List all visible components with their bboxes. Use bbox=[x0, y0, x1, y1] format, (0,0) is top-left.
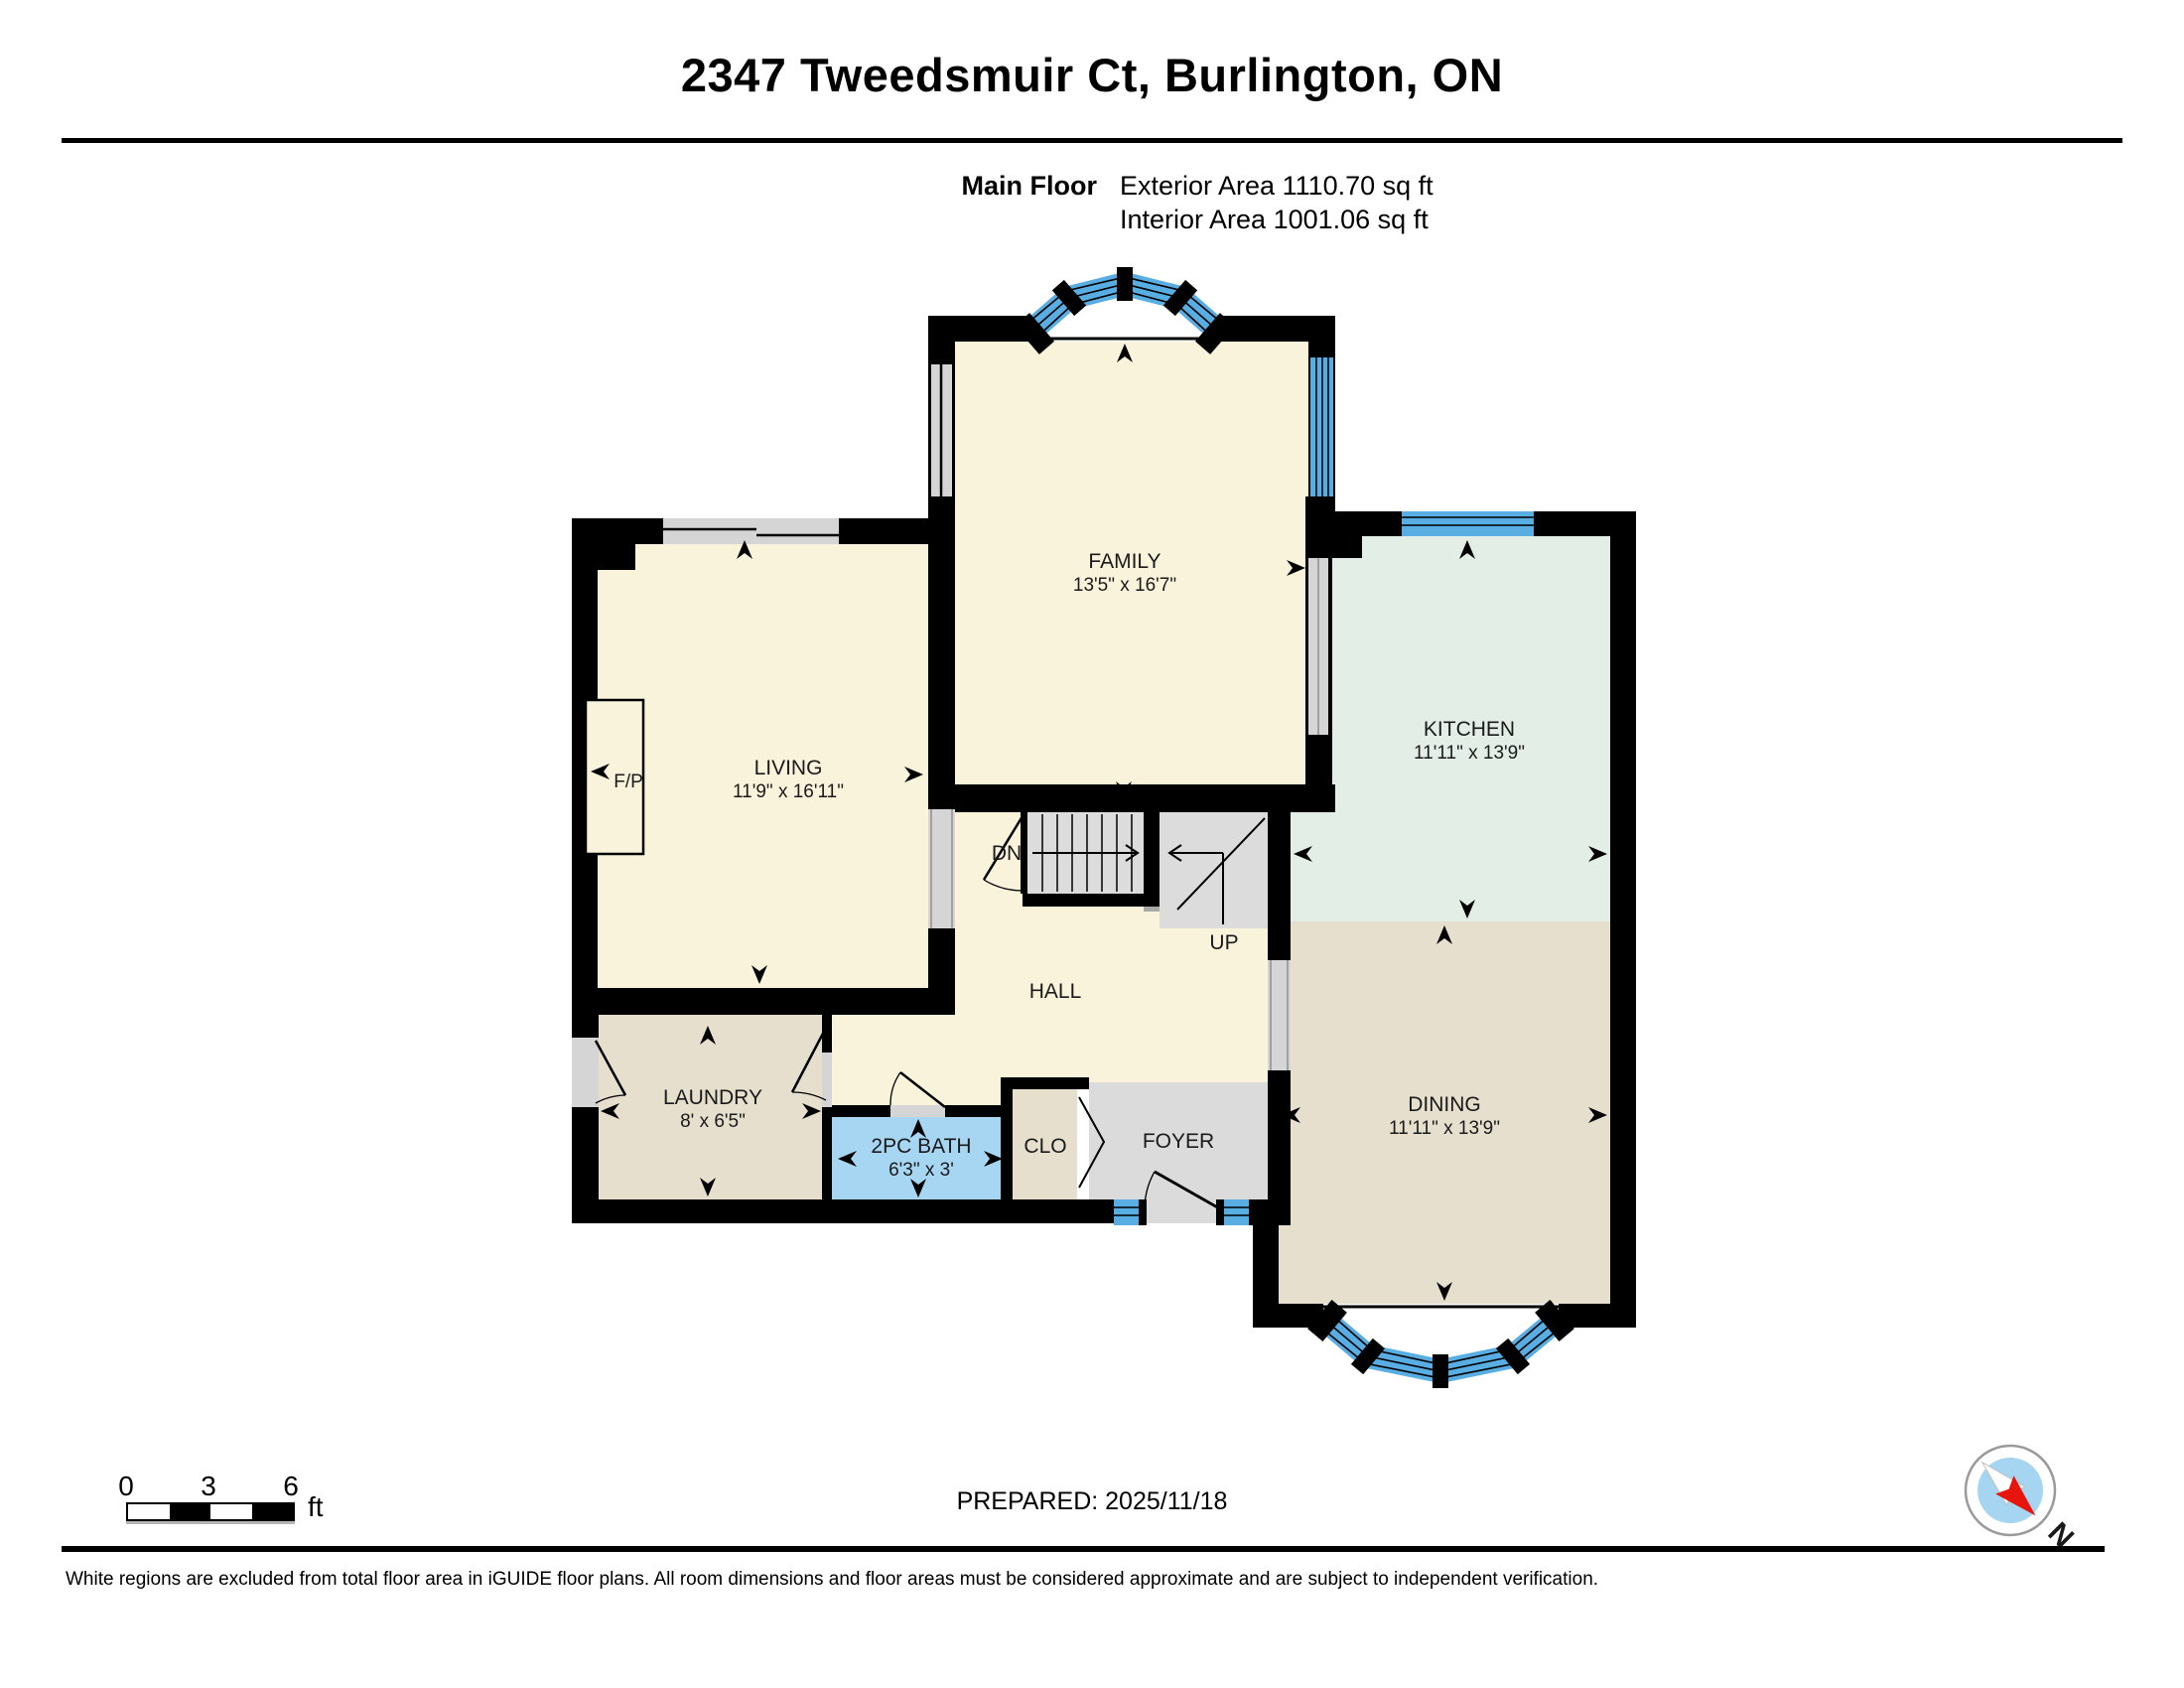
room-bath-label: 2PC BATH bbox=[871, 1135, 971, 1158]
floorplan-page: { "header": { "title": "2347 Tweedsmuir … bbox=[0, 0, 2184, 1688]
laundry-left-door-opening bbox=[572, 1038, 599, 1107]
front-sidelight-right bbox=[1224, 1199, 1249, 1225]
room-family-dims: 13'5" x 16'7" bbox=[1073, 575, 1176, 596]
floor-plan-svg: FAMILY 13'5" x 16'7" LIVING 11'9" x 16'1… bbox=[0, 0, 2184, 1688]
room-laundry-label: LAUNDRY bbox=[663, 1086, 762, 1109]
family-right-window bbox=[1310, 357, 1333, 496]
room-bath-dims: 6'3" x 3' bbox=[888, 1160, 954, 1181]
family-kitchen-opening bbox=[1308, 558, 1328, 735]
scale-bar-shadow bbox=[126, 1521, 295, 1524]
front-sidelight-left bbox=[1114, 1199, 1139, 1225]
stairs-up-label: UP bbox=[1209, 931, 1238, 954]
room-family-label: FAMILY bbox=[1088, 550, 1160, 573]
kitchen-window bbox=[1402, 511, 1534, 536]
hall-dining-opening bbox=[1268, 960, 1291, 1070]
room-dining-label: DINING bbox=[1408, 1093, 1481, 1116]
room-kitchen-label: KITCHEN bbox=[1424, 718, 1515, 741]
room-hall-label: HALL bbox=[1029, 980, 1082, 1003]
disclaimer-text: White regions are excluded from total fl… bbox=[66, 1569, 1598, 1591]
room-kitchen-dims: 11'11" x 13'9" bbox=[1414, 743, 1525, 764]
room-fills bbox=[598, 342, 1610, 1304]
stairs-dn-label: DN bbox=[992, 842, 1022, 865]
fireplace-label: F/P bbox=[614, 772, 643, 792]
room-foyer-label: FOYER bbox=[1143, 1130, 1214, 1153]
living-hall-opening bbox=[928, 809, 955, 928]
front-door-threshold bbox=[1147, 1199, 1216, 1223]
family-bay-window bbox=[1015, 267, 1235, 354]
room-living-label: LIVING bbox=[754, 757, 823, 779]
dining-bay-window bbox=[1307, 1300, 1574, 1388]
room-living-dims: 11'9" x 16'11" bbox=[733, 781, 844, 802]
bath-door-opening bbox=[890, 1105, 945, 1117]
room-dining-dims: 11'11" x 13'9" bbox=[1389, 1118, 1500, 1139]
room-laundry-dims: 8' x 6'5" bbox=[680, 1111, 746, 1132]
room-clo-label: CLO bbox=[1024, 1135, 1066, 1158]
family-left-window bbox=[931, 364, 952, 496]
living-top-window bbox=[663, 518, 839, 544]
prepared-date: PREPARED: 2025/11/18 bbox=[0, 1487, 2184, 1516]
footer-divider bbox=[62, 1546, 2105, 1552]
